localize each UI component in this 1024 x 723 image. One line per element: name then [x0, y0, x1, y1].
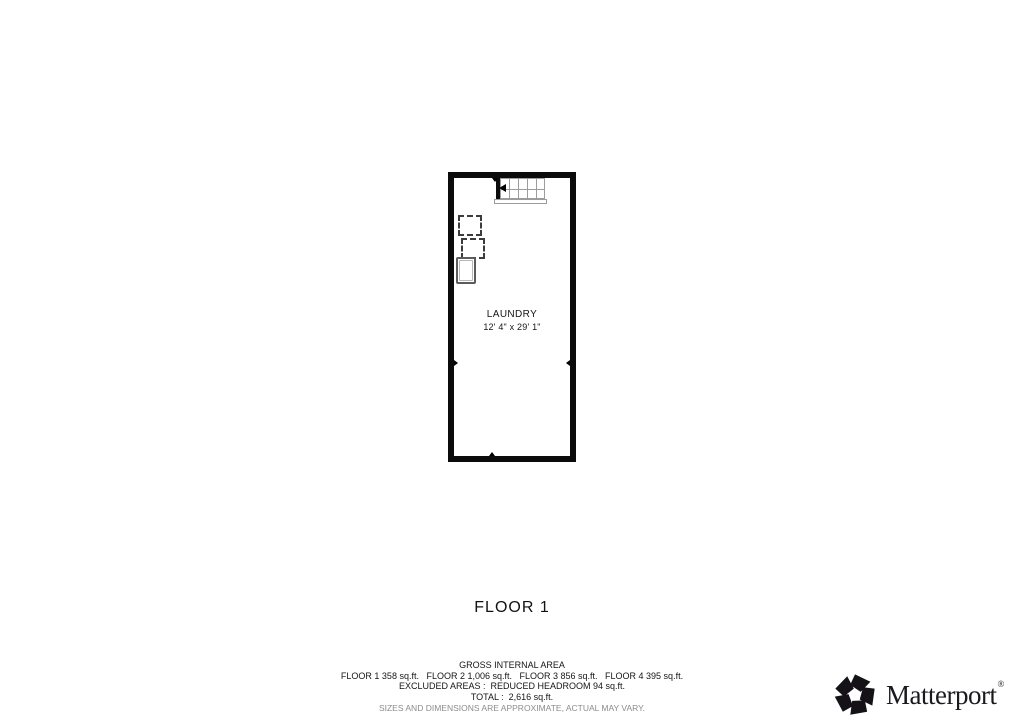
- room-dimensions: 12' 4" x 29' 1": [454, 322, 570, 332]
- fixture-icon: [456, 257, 476, 284]
- floor-title: FLOOR 1: [0, 599, 1024, 617]
- wall-tick-icon: [454, 360, 458, 366]
- stair-direction-arrow-icon: [499, 184, 506, 192]
- wall-tick-icon: [489, 452, 495, 456]
- fixture-inner-outline: [459, 260, 473, 281]
- brand-name: Matterport: [886, 680, 996, 710]
- matterport-pinwheel-icon: [833, 673, 877, 717]
- appliance-dashed-outline-icon: [458, 215, 482, 236]
- floor-plan-room: LAUNDRY 12' 4" x 29' 1": [448, 172, 576, 462]
- room-name: LAUNDRY: [454, 309, 570, 320]
- matterport-logo: Matterport®: [833, 671, 1004, 719]
- appliance-dashed-outline-icon: [461, 238, 485, 259]
- brand-wordmark: Matterport®: [886, 682, 1004, 709]
- registered-trademark: ®: [997, 679, 1003, 689]
- wall-tick-icon: [492, 178, 498, 182]
- room-label: LAUNDRY 12' 4" x 29' 1": [454, 309, 570, 332]
- stair-mid-line: [501, 189, 544, 190]
- staircase-icon: [500, 178, 545, 199]
- gross-internal-area-heading: GROSS INTERNAL AREA: [0, 660, 1024, 671]
- stair-landing-edge: [494, 199, 547, 204]
- wall-tick-icon: [566, 360, 570, 366]
- floor-plan-page: LAUNDRY 12' 4" x 29' 1" FLOOR 1 GROSS IN…: [0, 0, 1024, 723]
